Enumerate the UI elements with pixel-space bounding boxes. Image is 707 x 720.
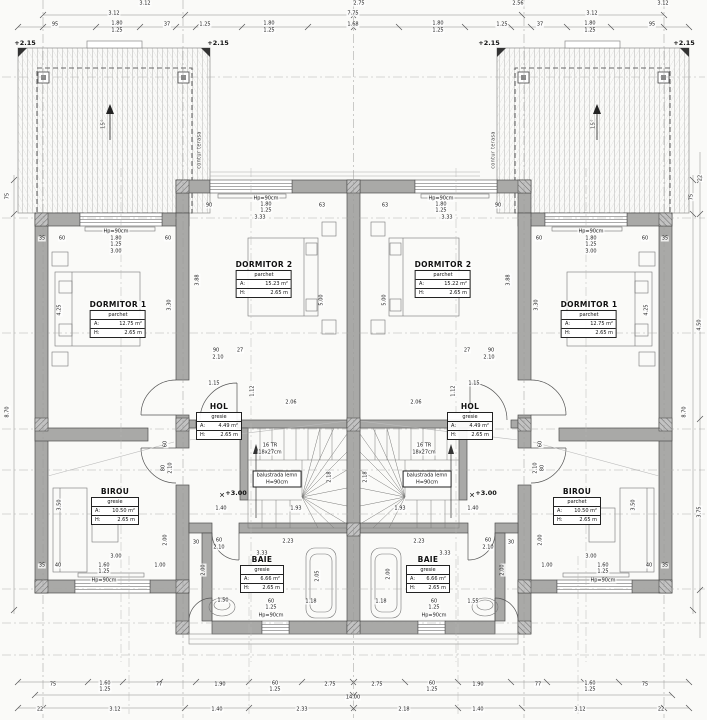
- floor-plan-drawing: [0, 0, 707, 720]
- door-arc: [200, 383, 237, 420]
- window: [75, 580, 150, 593]
- sofa: [53, 488, 87, 572]
- left-half-plan: [11, 12, 357, 711]
- radiator: [218, 194, 286, 198]
- sink: [209, 598, 235, 616]
- staircase: [248, 428, 347, 528]
- structural-columns: [35, 180, 189, 634]
- bed: [55, 272, 140, 346]
- radiator: [78, 573, 144, 577]
- bed: [248, 238, 318, 316]
- radiator: [85, 227, 155, 231]
- furniture: [48, 194, 347, 618]
- dimension-lines: [697, 152, 703, 638]
- desk: [92, 508, 118, 542]
- door-arc: [141, 448, 176, 483]
- floor-plan-canvas: 3.122.752.563.123.127.753.12951.801.2537…: [0, 0, 707, 720]
- door-arc: [212, 533, 239, 560]
- door-arc: [141, 380, 176, 415]
